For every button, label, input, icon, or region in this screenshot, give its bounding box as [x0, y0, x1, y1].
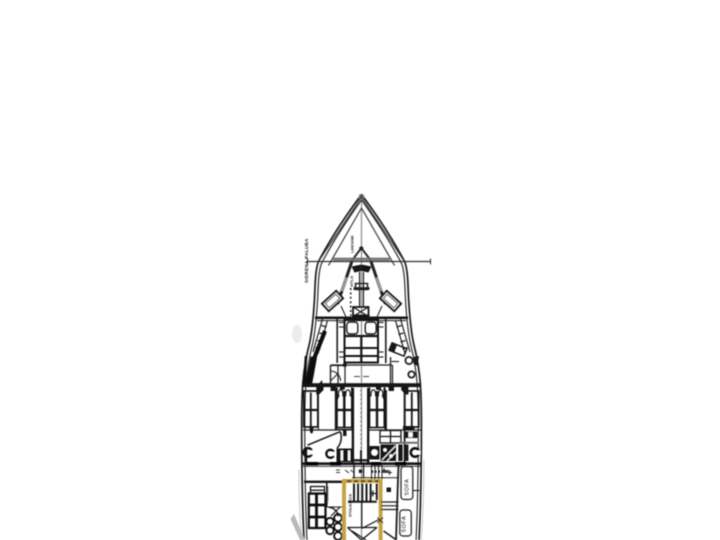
svg-text:SOFA: SOFA [402, 516, 408, 533]
svg-text:LANCANIK: LANCANIK [351, 235, 355, 253]
svg-text:STOLNJACA: STOLNJACA [349, 494, 353, 517]
svg-text:SOFA: SOFA [405, 479, 411, 496]
svg-text:SIDRENA PALUBA: SIDRENA PALUBA [304, 238, 309, 283]
svg-text:VITLO: VITLO [350, 276, 354, 287]
